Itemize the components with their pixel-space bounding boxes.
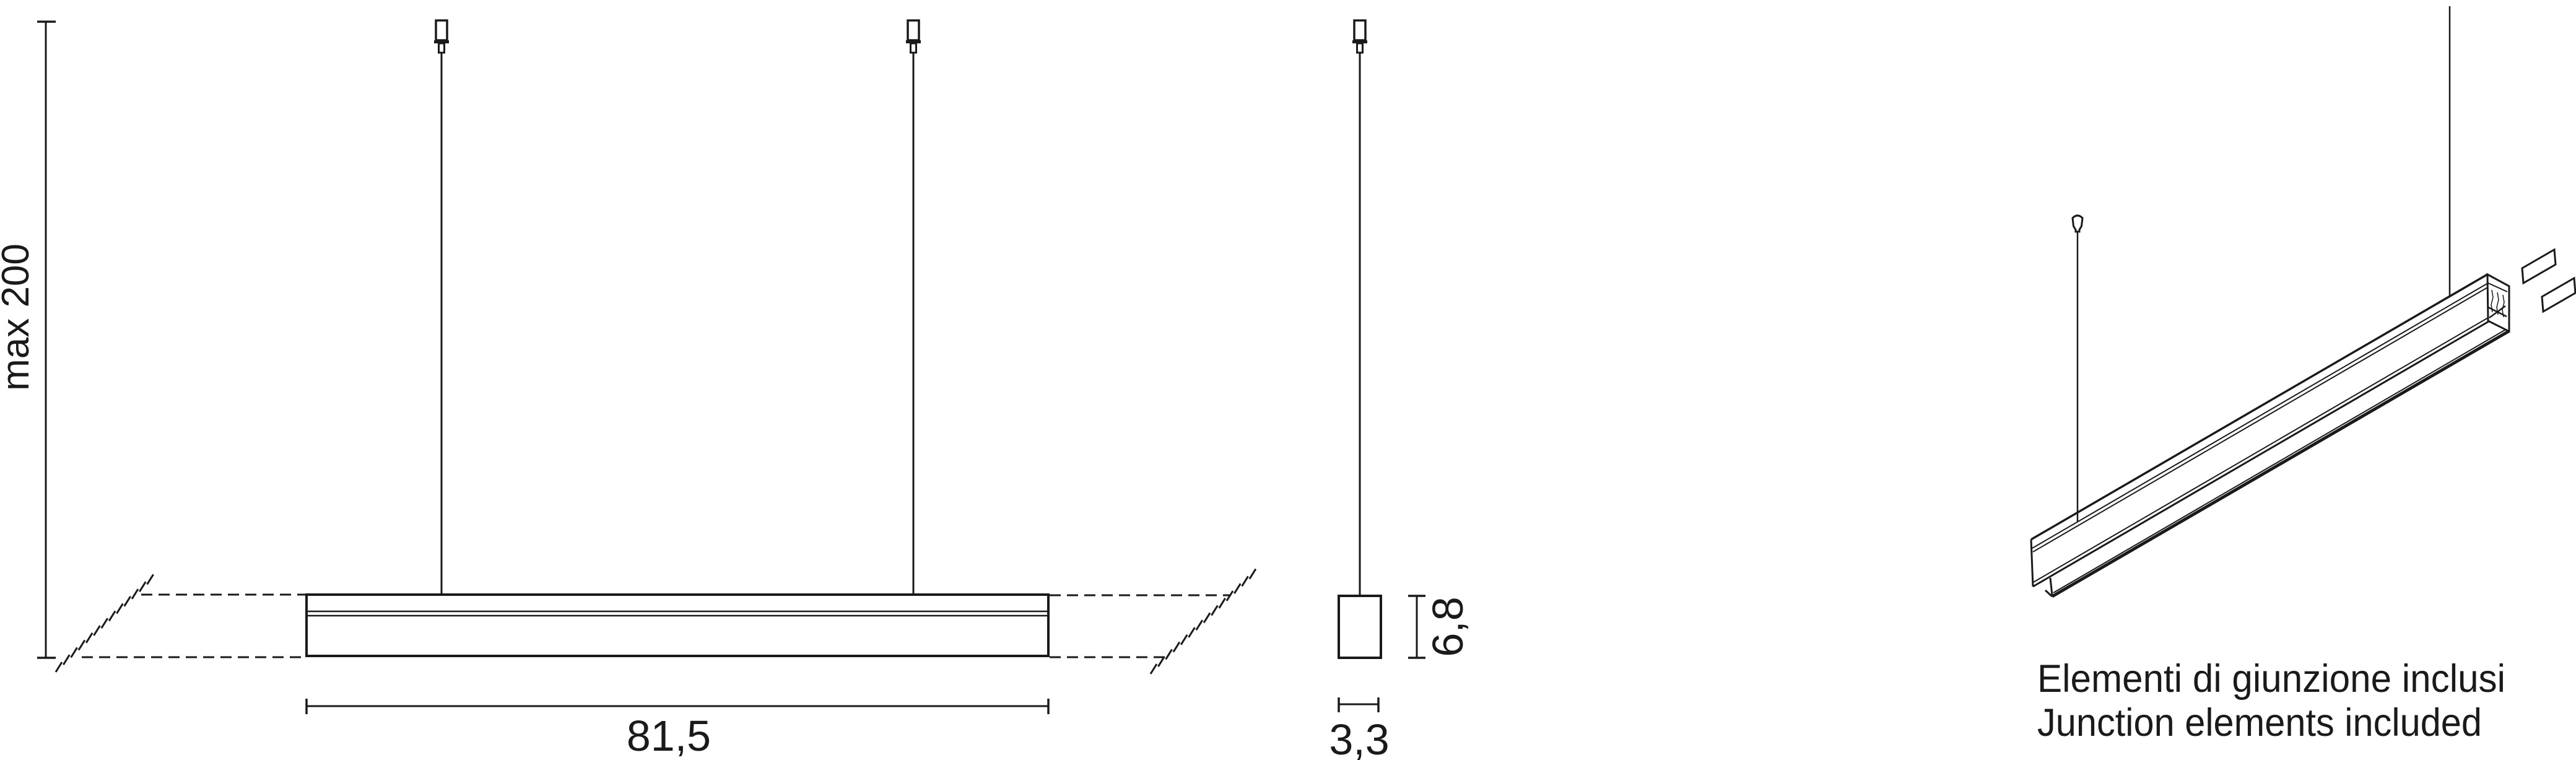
length-dimension: 81,5 (307, 699, 1048, 760)
ceiling-mount-side (1352, 20, 1367, 53)
height-dimension-label: max 200 (0, 243, 37, 391)
fixture-body (307, 595, 1048, 656)
break-mark-right (1151, 569, 1256, 674)
ceiling-mount-left (434, 20, 449, 53)
channel-front-left-stub (2050, 578, 2052, 595)
technical-drawing-page: max 200 (0, 0, 2576, 760)
front-view: max 200 (0, 20, 1256, 760)
caption: Elementi di giunzione inclusi Junction e… (2037, 657, 2505, 745)
isometric-view (2031, 6, 2575, 596)
profile-height-dimension: 6,8 (1408, 596, 1472, 658)
channel-wall-bottom-edge (2033, 321, 2489, 587)
side-view: 6,8 3,3 (1329, 20, 1472, 760)
profile-width-dimension: 3,3 (1329, 697, 1389, 760)
cable-gripper-fitting (2073, 216, 2082, 232)
profile-height-label: 6,8 (1424, 596, 1472, 657)
junction-plate-2 (2542, 278, 2575, 312)
fixture-body-outline (307, 595, 1048, 656)
ceiling-mount-right (906, 20, 921, 53)
channel-top-edge (2031, 274, 2487, 539)
iso-channel-body (2031, 274, 2509, 596)
continuation-right (1050, 569, 1256, 674)
channel-lip-line-2 (2033, 287, 2489, 552)
continuation-left (56, 574, 305, 672)
channel-front-bottom-edge (2052, 331, 2509, 596)
profile-width-label: 3,3 (1329, 715, 1389, 760)
channel-front-bottom-inner (2053, 328, 2508, 593)
junction-plate-1 (2522, 250, 2556, 283)
channel-lip-line-1 (2032, 283, 2488, 548)
channel-wall-bottom-inner (2032, 318, 2488, 583)
fixture-profile-outline (1339, 596, 1381, 658)
junction-elements (2522, 250, 2575, 312)
caption-italian: Elementi di giunzione inclusi (2037, 657, 2505, 701)
pendant-light-dimension-drawing: max 200 (0, 0, 2576, 760)
height-dimension: max 200 (0, 22, 56, 658)
caption-english: Junction elements included (2037, 701, 2482, 745)
channel-left-end-edge (2031, 539, 2033, 587)
length-dimension-label: 81,5 (627, 712, 711, 760)
